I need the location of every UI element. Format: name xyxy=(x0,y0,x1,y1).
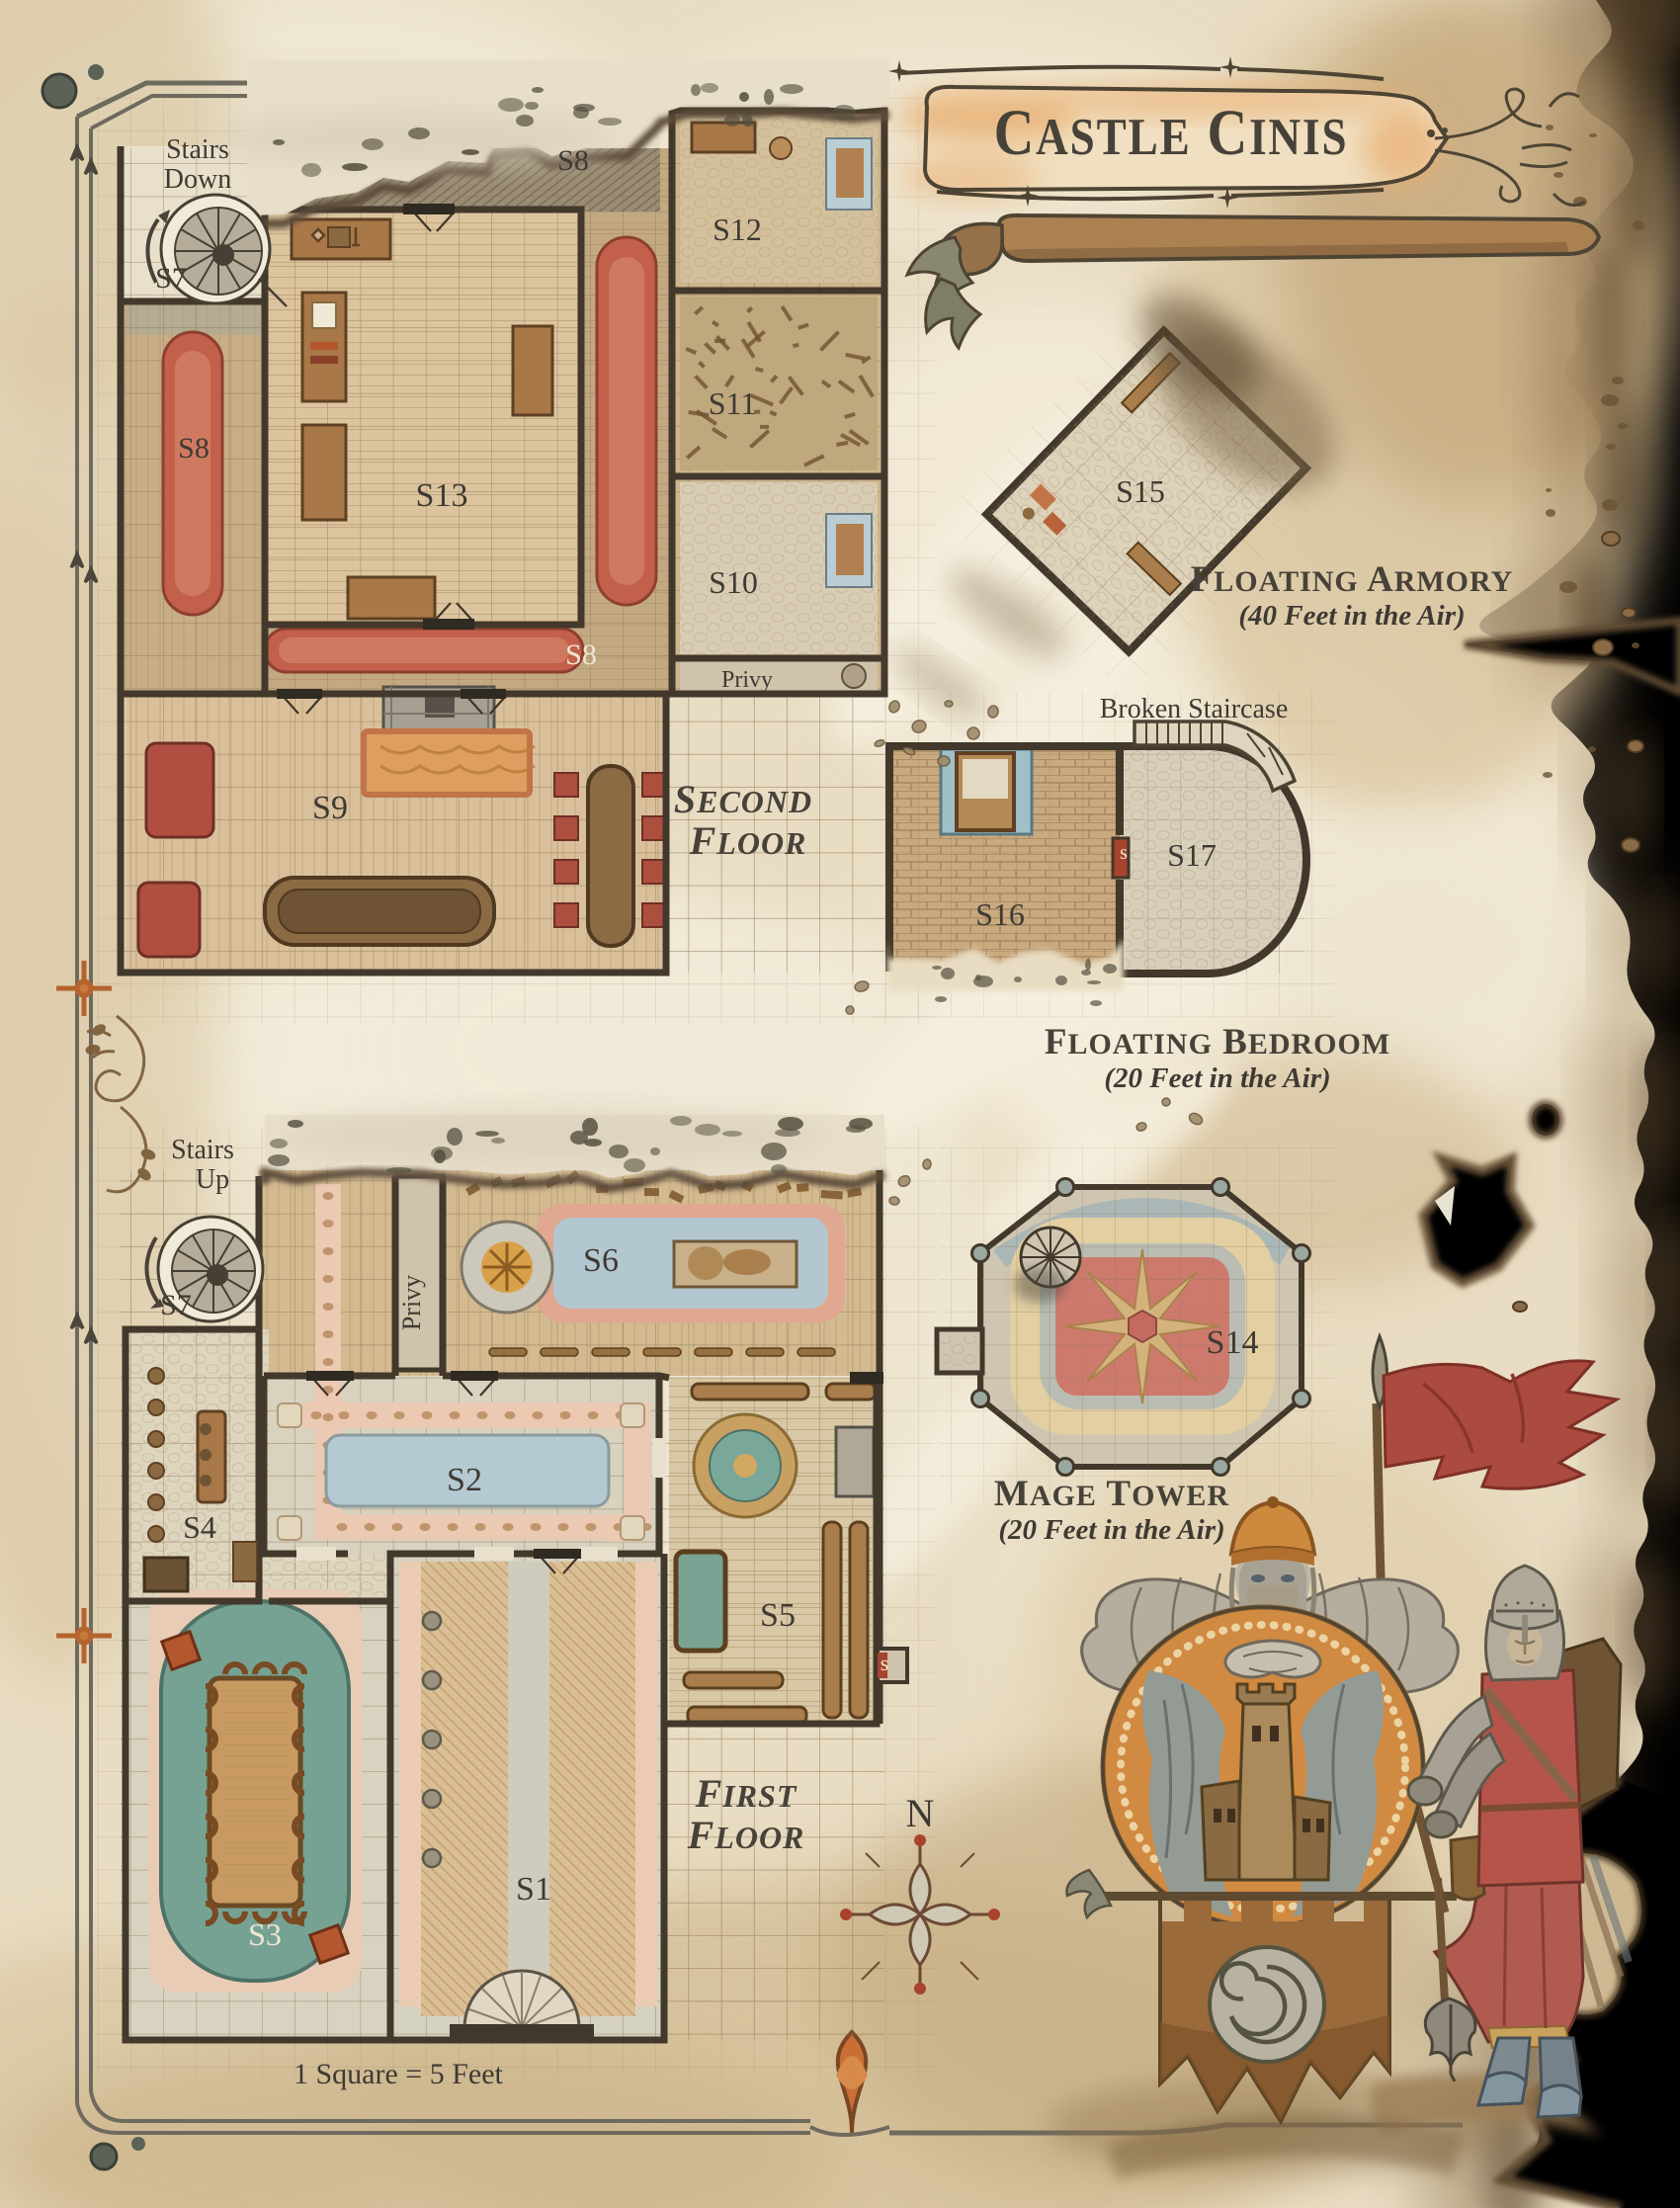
svg-text:S9: S9 xyxy=(312,790,348,826)
svg-text:S8: S8 xyxy=(178,432,210,465)
svg-text:S14: S14 xyxy=(1207,1324,1259,1361)
svg-text:S8: S8 xyxy=(557,144,589,177)
svg-text:Stairs: Stairs xyxy=(166,134,229,165)
svg-text:MAGE TOWER: MAGE TOWER xyxy=(994,1474,1229,1514)
svg-text:FIRST: FIRST xyxy=(695,1771,798,1816)
svg-text:s: s xyxy=(881,1651,889,1675)
svg-text:(40 Feet in the Air): (40 Feet in the Air) xyxy=(1238,600,1465,632)
svg-text:S1: S1 xyxy=(516,1871,551,1908)
svg-text:Broken Staircase: Broken Staircase xyxy=(1100,694,1289,724)
svg-text:S7: S7 xyxy=(155,262,187,295)
svg-text:FLOOR: FLOOR xyxy=(687,1813,805,1857)
svg-text:S16: S16 xyxy=(975,896,1025,932)
svg-text:FLOATING ARMORY: FLOATING ARMORY xyxy=(1191,559,1514,600)
svg-text:SECOND: SECOND xyxy=(674,777,812,821)
svg-text:S15: S15 xyxy=(1116,473,1165,509)
svg-text:S2: S2 xyxy=(447,1462,482,1498)
svg-text:Privy: Privy xyxy=(397,1275,426,1330)
svg-text:S7: S7 xyxy=(160,1289,192,1321)
svg-text:S3: S3 xyxy=(248,1916,282,1952)
svg-text:Up: Up xyxy=(196,1164,229,1195)
svg-text:(20 Feet in the Air): (20 Feet in the Air) xyxy=(998,1514,1224,1546)
svg-text:FLOATING BEDROOM: FLOATING BEDROOM xyxy=(1045,1022,1390,1062)
svg-text:S17: S17 xyxy=(1167,837,1217,873)
svg-text:S6: S6 xyxy=(583,1242,619,1279)
svg-text:S5: S5 xyxy=(760,1597,796,1634)
svg-text:S11: S11 xyxy=(709,385,757,421)
svg-text:Down: Down xyxy=(164,164,231,195)
svg-text:(20 Feet in the Air): (20 Feet in the Air) xyxy=(1104,1062,1330,1094)
svg-text:S8: S8 xyxy=(565,638,597,671)
svg-text:S12: S12 xyxy=(713,212,762,247)
svg-text:S13: S13 xyxy=(416,477,468,514)
svg-text:S10: S10 xyxy=(709,564,758,600)
svg-text:Stairs: Stairs xyxy=(171,1135,234,1165)
svg-text:s: s xyxy=(1120,842,1128,864)
svg-text:N: N xyxy=(906,1791,935,1835)
svg-text:S4: S4 xyxy=(183,1509,216,1545)
svg-text:Privy: Privy xyxy=(721,667,773,693)
svg-text:CASTLE CINIS: CASTLE CINIS xyxy=(994,97,1349,169)
svg-text:FLOOR: FLOOR xyxy=(689,818,807,863)
svg-text:1 Square = 5 Feet: 1 Square = 5 Feet xyxy=(294,2058,504,2090)
